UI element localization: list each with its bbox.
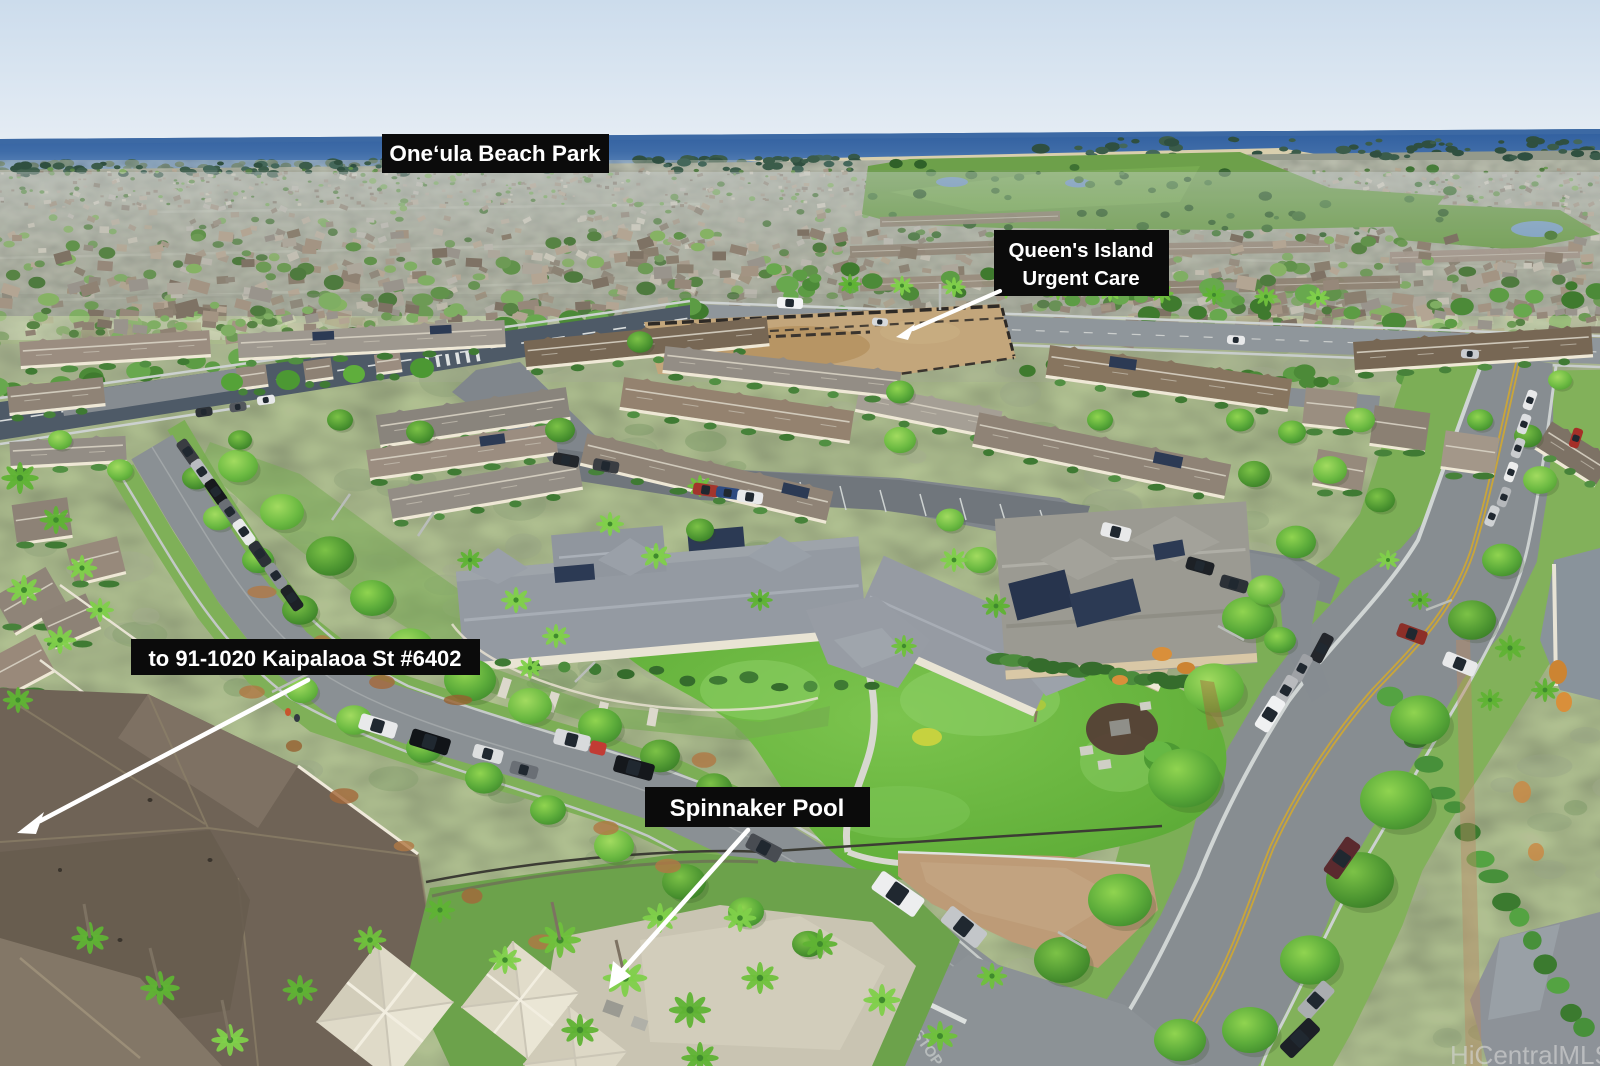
svg-text:Urgent Care: Urgent Care [1022, 267, 1139, 290]
svg-text:Oneʻula Beach Park: Oneʻula Beach Park [389, 141, 601, 166]
svg-text:Queen's Island: Queen's Island [1008, 239, 1153, 262]
svg-text:HiCentralMLS: HiCentralMLS [1450, 1040, 1600, 1066]
svg-text:to 91-1020 Kaipalaoa St #6402: to 91-1020 Kaipalaoa St #6402 [148, 646, 461, 671]
svg-text:Spinnaker Pool: Spinnaker Pool [670, 795, 845, 822]
